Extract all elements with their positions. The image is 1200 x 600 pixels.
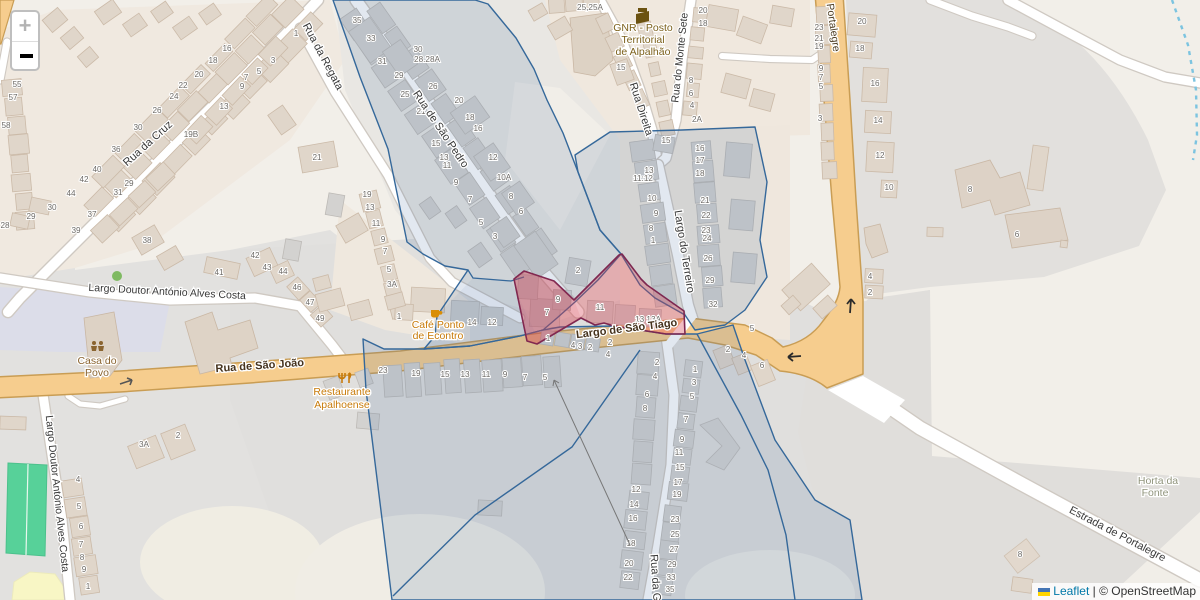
svg-text:44: 44 [278,267,288,276]
svg-text:Fonte: Fonte [1142,487,1169,499]
svg-text:5: 5 [819,82,824,91]
svg-text:Casa do: Casa do [77,355,116,367]
svg-text:11: 11 [596,303,605,312]
svg-text:Restaurante: Restaurante [313,386,370,398]
svg-text:19B: 19B [184,130,199,139]
svg-text:21: 21 [312,153,322,162]
svg-text:3A: 3A [387,280,398,289]
svg-text:15: 15 [440,370,450,379]
svg-text:57: 57 [8,93,18,102]
svg-text:16: 16 [870,79,880,88]
svg-text:31: 31 [113,188,123,197]
svg-text:6: 6 [79,522,84,531]
svg-text:de Econtro: de Econtro [413,330,464,342]
svg-text:3: 3 [271,56,276,65]
svg-text:5: 5 [690,392,695,401]
svg-text:8: 8 [689,76,694,85]
svg-text:9: 9 [680,435,685,444]
svg-text:31: 31 [377,57,387,66]
svg-text:13: 13 [365,203,375,212]
svg-text:41: 41 [214,268,224,277]
svg-text:21: 21 [700,196,710,205]
svg-text:42: 42 [250,251,260,260]
svg-text:4: 4 [690,101,695,110]
svg-text:18: 18 [208,56,218,65]
svg-text:5: 5 [77,502,82,511]
svg-text:30: 30 [47,203,57,212]
svg-text:33: 33 [366,34,376,43]
svg-text:9: 9 [819,64,824,73]
svg-text:12: 12 [487,318,497,327]
svg-text:9: 9 [454,178,459,187]
svg-text:26: 26 [152,106,162,115]
svg-text:6: 6 [689,89,694,98]
svg-text:30: 30 [413,45,423,54]
svg-text:23: 23 [378,366,388,375]
svg-text:29: 29 [394,71,404,80]
svg-text:16: 16 [695,144,705,153]
svg-text:Povo: Povo [85,367,109,379]
svg-text:28: 28 [0,221,10,230]
svg-text:12: 12 [875,151,885,160]
svg-text:2: 2 [655,358,660,367]
svg-text:15: 15 [431,139,441,148]
svg-text:9: 9 [381,235,386,244]
svg-text:1: 1 [86,582,91,591]
svg-text:8: 8 [968,185,973,194]
svg-text:26: 26 [428,82,438,91]
svg-text:29: 29 [26,212,36,221]
svg-text:43: 43 [262,263,272,272]
svg-text:33: 33 [666,573,676,582]
svg-text:25: 25 [670,530,680,539]
svg-text:7: 7 [79,540,84,549]
svg-text:19: 19 [362,190,372,199]
svg-text:17: 17 [673,478,683,487]
svg-text:29: 29 [124,179,134,188]
svg-text:20: 20 [194,70,204,79]
svg-text:20: 20 [857,17,867,26]
svg-text:9: 9 [503,370,508,379]
svg-text:14: 14 [629,500,639,509]
svg-text:2: 2 [588,343,593,352]
svg-text:38: 38 [142,236,152,245]
svg-text:7: 7 [684,415,689,424]
svg-text:20: 20 [454,96,464,105]
svg-text:46: 46 [292,283,302,292]
svg-text:3: 3 [578,342,583,351]
svg-text:1: 1 [546,334,551,343]
svg-text:2A: 2A [692,115,703,124]
svg-text:40: 40 [92,165,102,174]
svg-text:15: 15 [616,63,626,72]
svg-text:2: 2 [726,345,731,354]
svg-text:3: 3 [692,378,697,387]
svg-text:4: 4 [653,372,658,381]
svg-text:22: 22 [623,573,633,582]
svg-text:19: 19 [672,490,682,499]
svg-text:8: 8 [1018,550,1023,559]
svg-text:15: 15 [675,463,685,472]
svg-text:11: 11 [482,370,491,379]
svg-text:7: 7 [244,73,249,82]
svg-text:14: 14 [873,116,883,125]
svg-text:8: 8 [643,404,648,413]
svg-text:3: 3 [818,114,823,123]
svg-text:6: 6 [645,390,650,399]
svg-text:58: 58 [1,121,11,130]
svg-text:4: 4 [76,475,81,484]
svg-text:25,25A: 25,25A [577,3,603,12]
svg-text:18: 18 [695,169,705,178]
svg-text:12: 12 [631,485,641,494]
svg-text:6: 6 [519,207,524,216]
svg-text:20: 20 [624,559,634,568]
svg-text:4: 4 [742,351,747,360]
svg-text:2: 2 [576,266,581,275]
svg-text:4: 4 [868,272,873,281]
svg-text:36: 36 [111,145,121,154]
svg-text:10A: 10A [497,173,512,182]
svg-text:9: 9 [240,82,245,91]
svg-text:9: 9 [556,295,561,304]
svg-text:8: 8 [80,553,85,562]
svg-text:24: 24 [169,92,179,101]
svg-text:5: 5 [257,67,262,76]
svg-text:26: 26 [703,254,713,263]
svg-text:3: 3 [493,232,498,241]
svg-text:5: 5 [543,373,548,382]
svg-text:4: 4 [606,350,611,359]
svg-text:19: 19 [814,42,824,51]
svg-text:de Alpalhão: de Alpalhão [616,46,671,58]
svg-text:12: 12 [488,153,498,162]
svg-text:16: 16 [473,124,483,133]
svg-text:5: 5 [479,218,484,227]
svg-text:16: 16 [222,44,232,53]
svg-text:2: 2 [176,431,181,440]
svg-text:19: 19 [411,369,421,378]
svg-text:Apalhoense: Apalhoense [314,399,370,411]
svg-text:14: 14 [467,318,477,327]
svg-text:18: 18 [698,19,708,28]
svg-text:9: 9 [654,209,659,218]
svg-text:GNR - Posto: GNR - Posto [613,22,673,34]
svg-text:7: 7 [383,247,388,256]
svg-text:35: 35 [352,16,362,25]
svg-text:1: 1 [651,236,656,245]
svg-text:37: 37 [87,210,97,219]
svg-text:8: 8 [509,192,514,201]
svg-text:5: 5 [750,324,755,333]
svg-text:7: 7 [468,195,473,204]
svg-text:2: 2 [868,288,873,297]
svg-text:7: 7 [523,373,528,382]
svg-text:11: 11 [443,161,452,170]
svg-text:25: 25 [400,90,410,99]
svg-text:6: 6 [1015,230,1020,239]
svg-text:5: 5 [387,265,392,274]
svg-text:2: 2 [608,338,613,347]
svg-text:55: 55 [12,80,22,89]
svg-text:8: 8 [649,224,654,233]
svg-text:42: 42 [79,175,89,184]
svg-text:28.28A: 28.28A [414,55,440,64]
svg-text:49: 49 [315,314,325,323]
svg-text:16: 16 [628,514,638,523]
svg-text:22: 22 [701,211,711,220]
svg-text:44: 44 [66,189,76,198]
svg-text:1: 1 [294,29,299,38]
svg-text:15: 15 [661,136,671,145]
svg-text:29: 29 [705,276,715,285]
svg-text:32: 32 [708,300,718,309]
svg-text:23: 23 [814,23,824,32]
svg-text:22: 22 [178,81,188,90]
svg-text:11: 11 [675,448,684,457]
svg-text:27: 27 [669,545,679,554]
svg-text:24: 24 [702,234,712,243]
svg-text:6: 6 [760,361,765,370]
svg-text:1: 1 [397,312,402,321]
svg-text:10: 10 [884,183,894,192]
svg-text:4: 4 [571,341,576,350]
svg-text:Horta da: Horta da [1138,475,1178,487]
svg-text:7: 7 [545,308,550,317]
svg-text:30: 30 [133,123,143,132]
svg-text:9: 9 [82,565,87,574]
svg-text:18: 18 [465,113,475,122]
svg-text:11: 11 [372,219,381,228]
svg-text:Territorial: Territorial [621,34,664,46]
svg-text:13: 13 [460,370,470,379]
svg-text:18: 18 [855,44,865,53]
svg-text:10: 10 [647,194,657,203]
svg-text:35: 35 [665,585,675,594]
svg-text:39: 39 [71,226,81,235]
svg-text:29: 29 [667,560,677,569]
svg-text:7: 7 [819,73,824,82]
svg-text:20: 20 [698,6,708,15]
svg-text:3A: 3A [139,440,150,449]
svg-text:17: 17 [695,156,705,165]
svg-text:47: 47 [305,298,315,307]
svg-text:11:12: 11:12 [633,174,653,183]
svg-text:23: 23 [670,515,680,524]
svg-text:1: 1 [693,365,698,374]
svg-text:13: 13 [219,102,229,111]
